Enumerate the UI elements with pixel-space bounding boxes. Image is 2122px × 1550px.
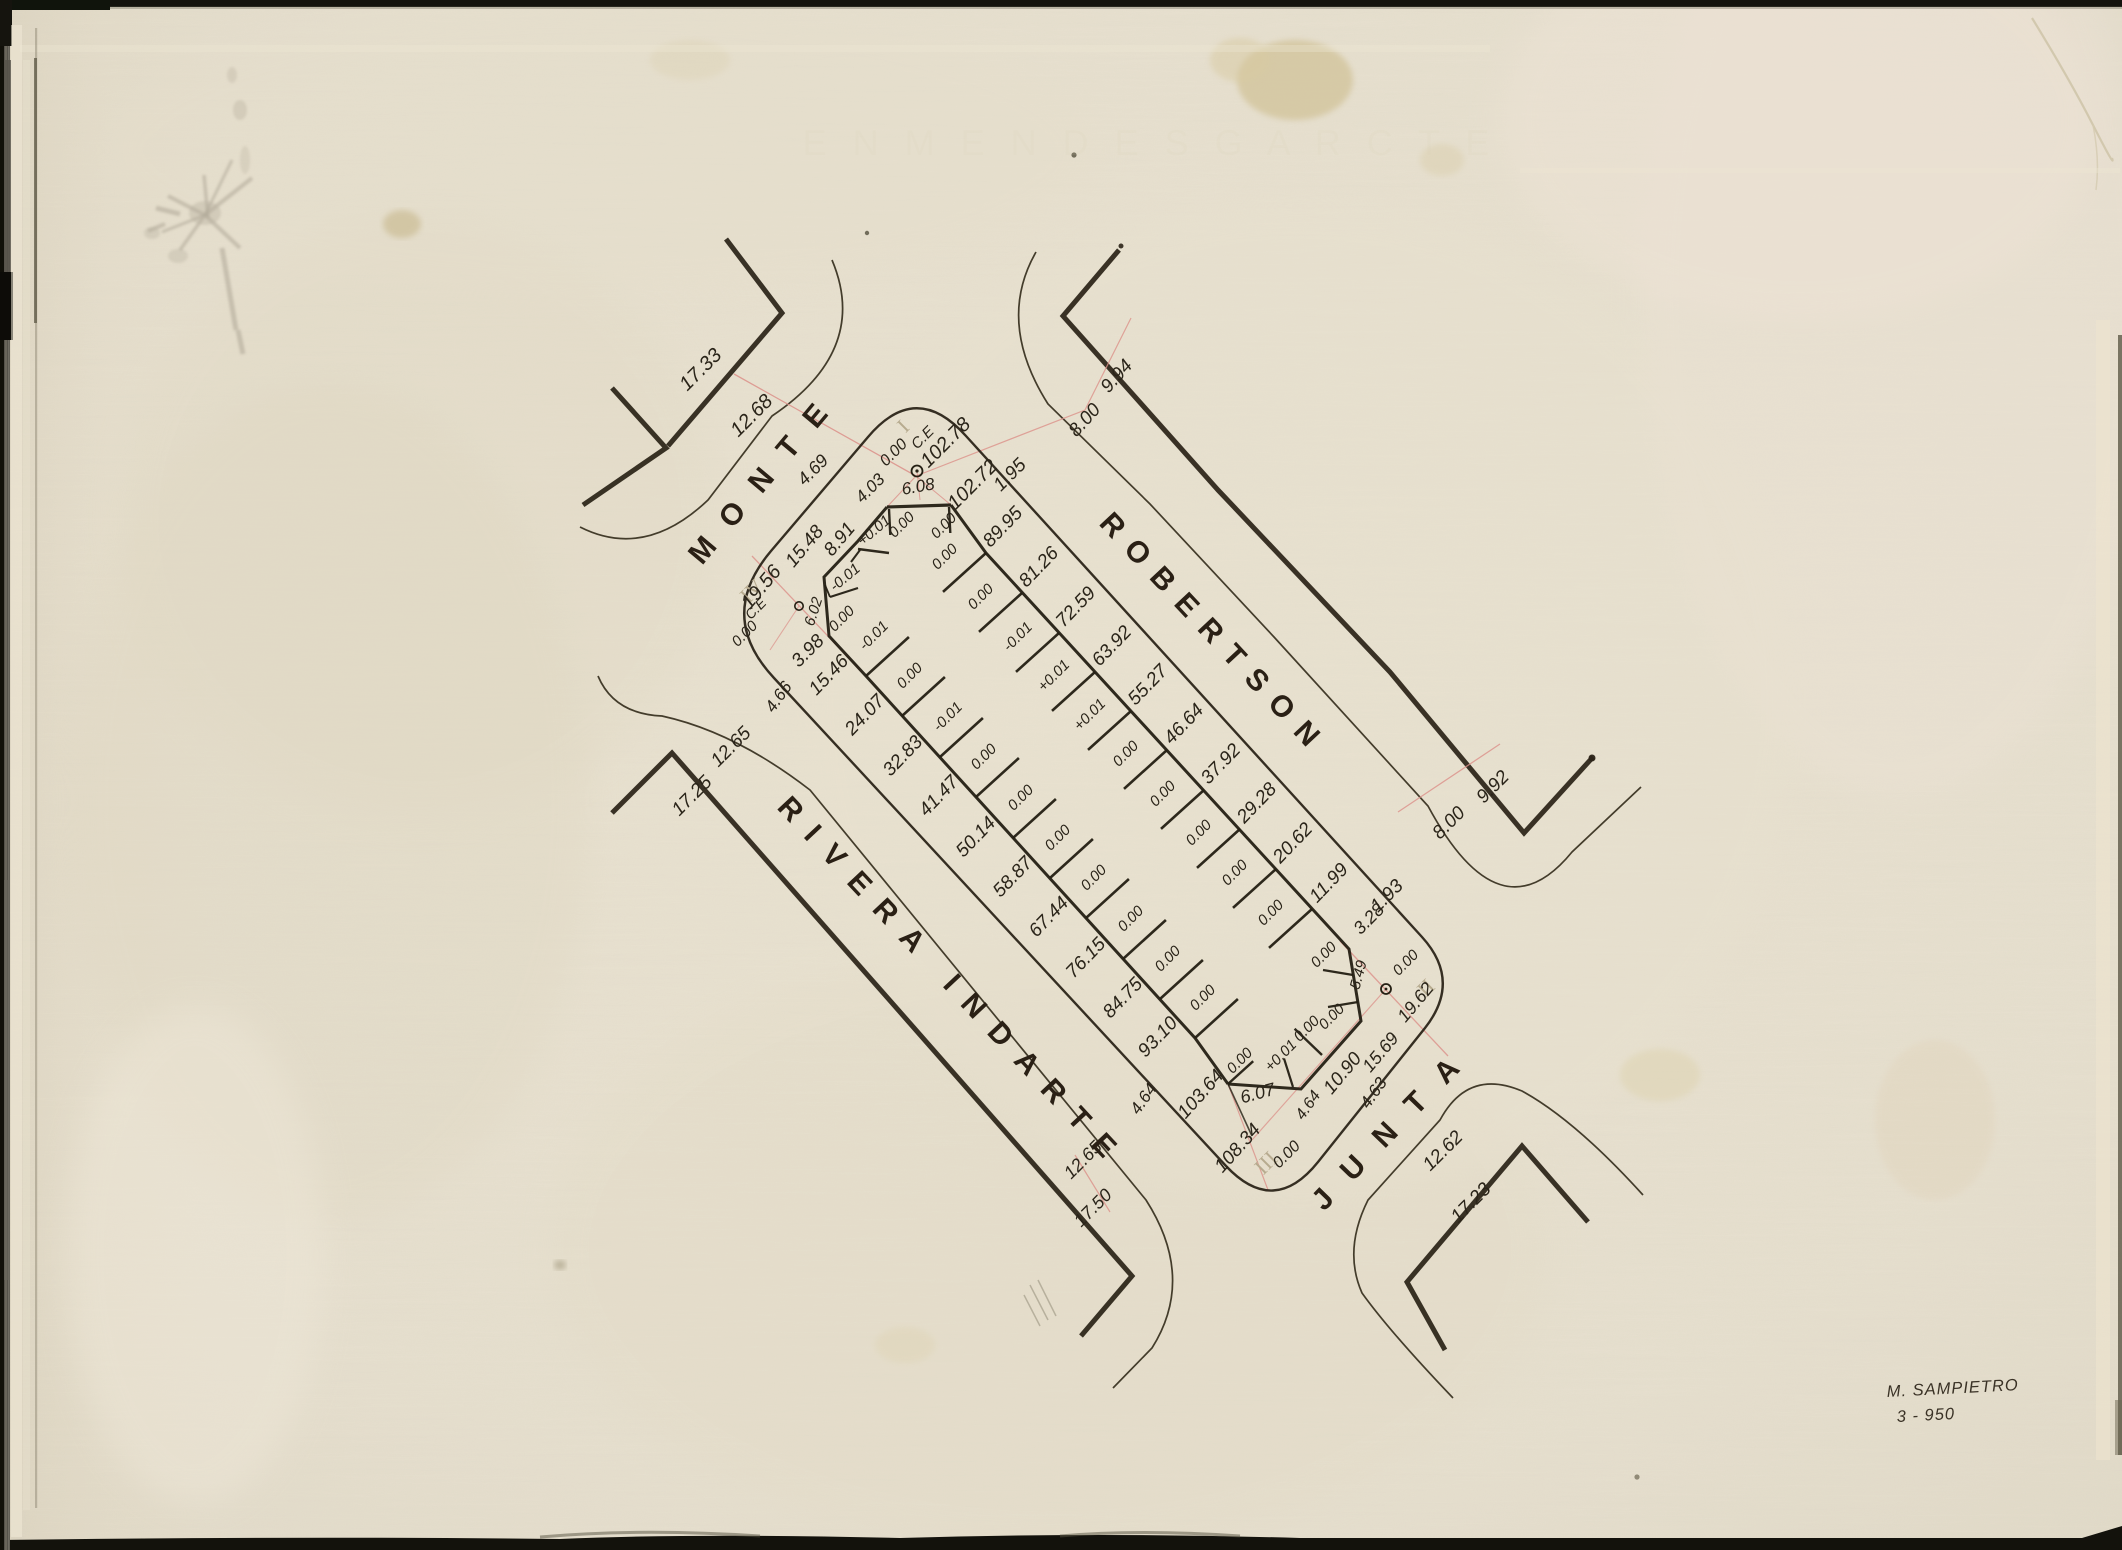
- svg-text:3 - 950: 3 - 950: [1896, 1405, 1955, 1426]
- svg-text:E N M E N D E S G A R C T E: E N M E N D E S G A R C T E: [803, 122, 1498, 163]
